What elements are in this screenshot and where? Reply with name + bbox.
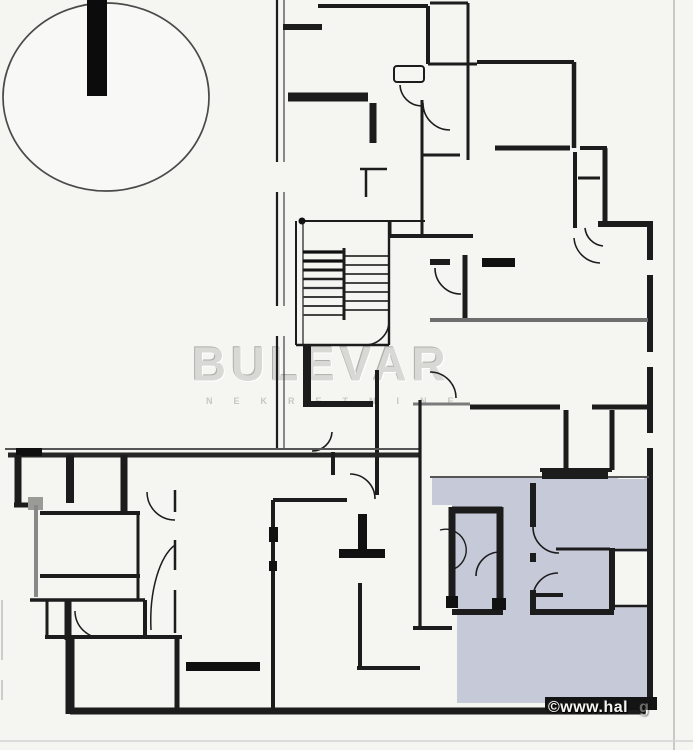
- copyright-watermark: ©www.halg: [548, 699, 649, 717]
- walls-middle-right: [390, 236, 648, 470]
- window-sill: [186, 662, 260, 671]
- north-indicator: [3, 0, 209, 191]
- copyright-text-faint: g: [639, 699, 649, 716]
- floor-plan-svg: [0, 0, 693, 750]
- highlighted-apartment: [432, 469, 649, 703]
- north-arrow-bar: [87, 0, 107, 96]
- sink-fixture: [394, 66, 424, 82]
- copyright-text: ©www.hal: [548, 699, 628, 716]
- floor-plan-image[interactable]: BULEVAR NEKRETNINE: [0, 0, 693, 750]
- stair-treads: [303, 252, 389, 315]
